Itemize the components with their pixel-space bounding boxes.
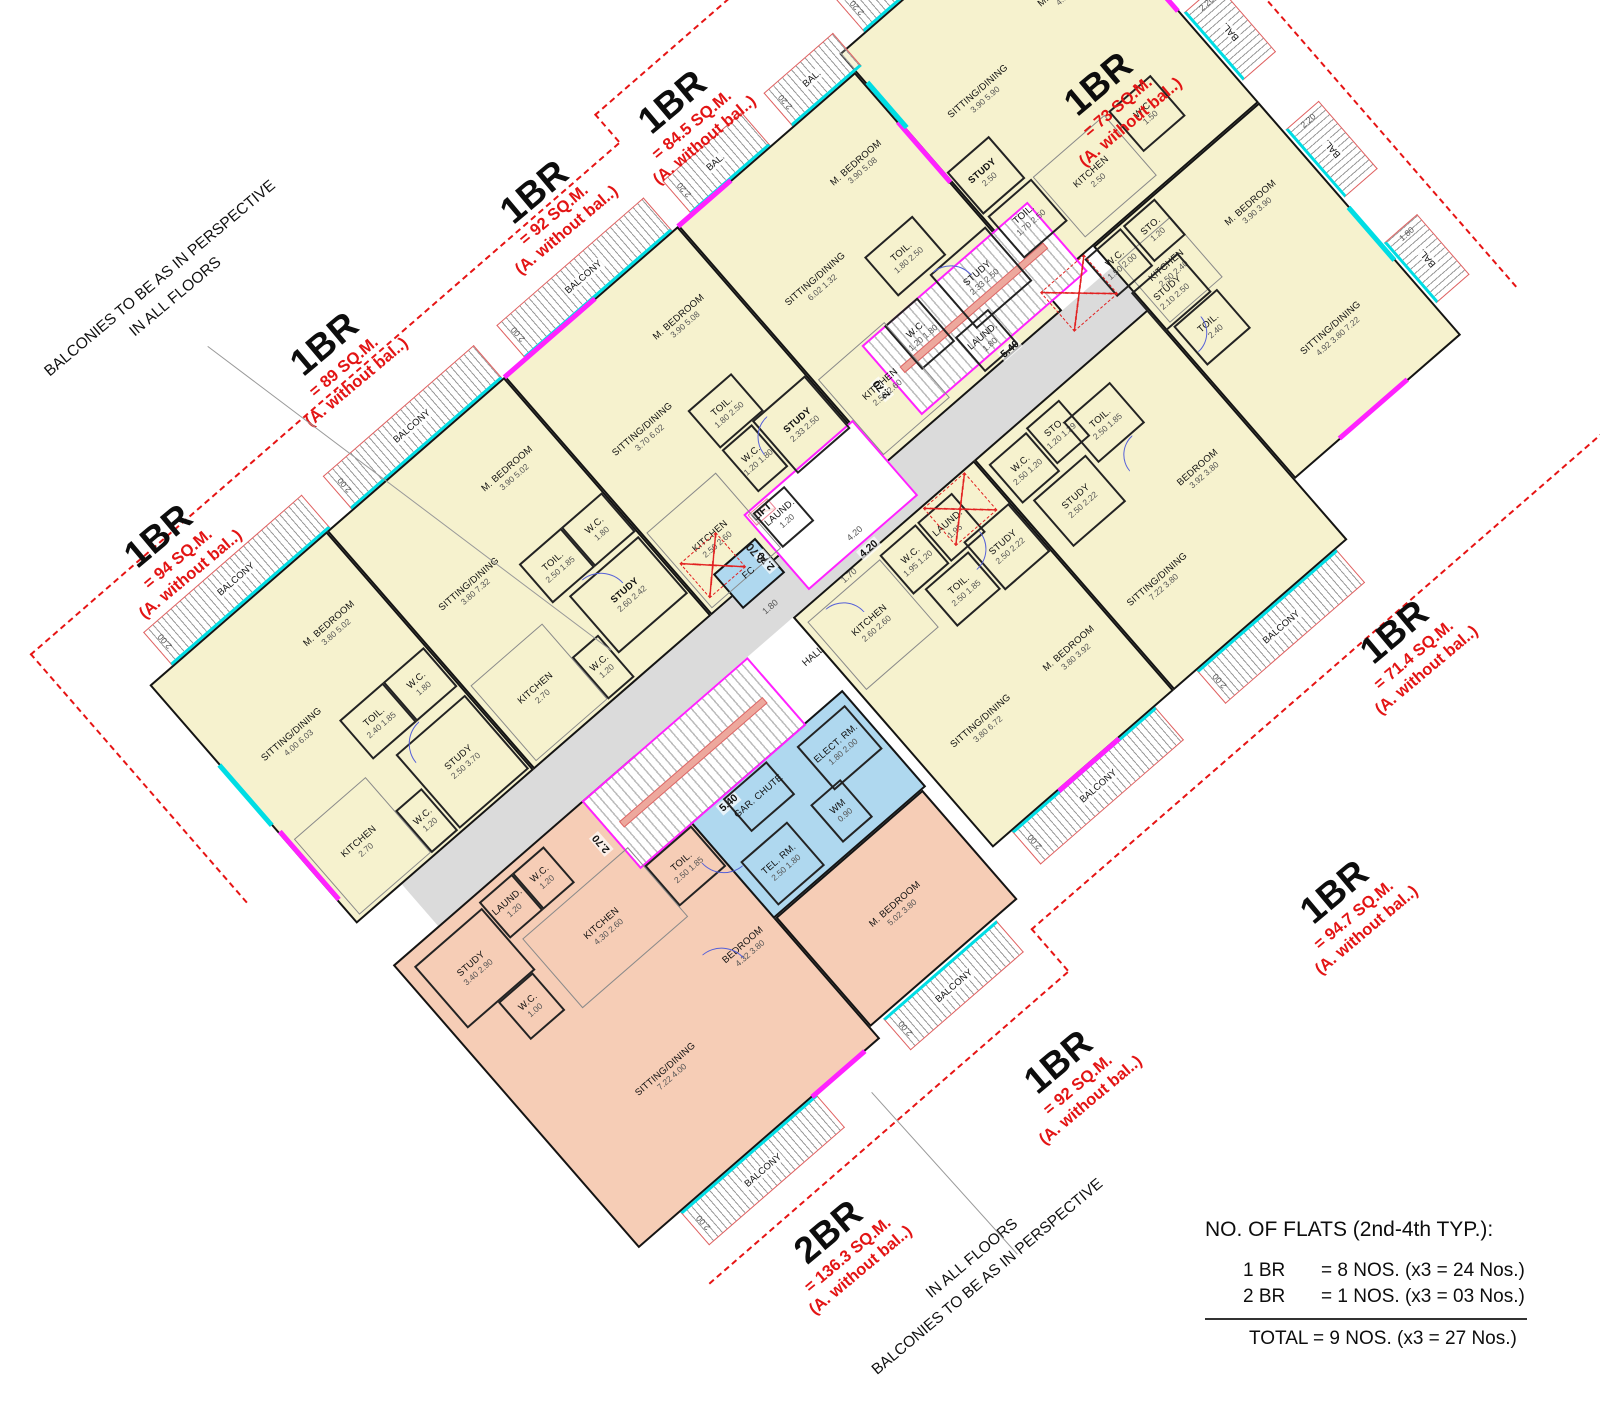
flats-row-label: 2 BR <box>1243 1286 1321 1308</box>
balcony-label: BAL. <box>1218 19 1242 45</box>
balcony-dimension: 2.00 <box>1210 672 1228 691</box>
flats-table-title: NO. OF FLATS (2nd-4th TYP.): <box>1205 1218 1527 1242</box>
balcony-dimension: 2.20 <box>1197 0 1216 13</box>
balcony-dimension: 2.20 <box>675 181 693 200</box>
balcony-dimension: 2.20 <box>848 0 866 18</box>
room-label: SITTING/DINING <box>949 693 1013 751</box>
balcony-label: BAL. <box>1415 245 1439 271</box>
room-label: SITTING/DINING <box>784 251 848 309</box>
room-dimension: 4.00 5.80 <box>1054 0 1087 7</box>
balcony-note: BALCONIES TO BE AS IN PERSPECTIVEIN ALL … <box>39 175 296 402</box>
unit-area-tag: 1BR= 89 SQ.M.(A. without bal..) <box>263 288 413 432</box>
balcony-label: BALCONY <box>214 559 259 600</box>
balcony-label: BAL. <box>799 67 825 91</box>
balcony-dimension: 2.20 <box>1299 111 1318 129</box>
flats-table-rows: 1 BR= 8 NOS. (x3 = 24 Nos.)2 BR= 1 NOS. … <box>1205 1260 1527 1308</box>
balcony-dimension: 2.00 <box>1025 832 1043 851</box>
setback-dashed-line <box>1030 928 1068 972</box>
flats-row-label: 1 BR <box>1243 1260 1321 1282</box>
unit-area-tag: 1BR= 92 SQ.M.(A. without bal..) <box>997 1006 1147 1150</box>
room-label: SITTING/DINING <box>437 556 501 614</box>
room-label: SITTING/DINING <box>260 706 324 764</box>
balcony-dimension: 1.80 <box>1397 225 1416 243</box>
balcony-note-line: BALCONIES TO BE AS IN PERSPECTIVE <box>867 1173 1109 1382</box>
balcony-label: BALCONY <box>561 257 606 298</box>
balcony-note-line: BALCONIES TO BE AS IN PERSPECTIVE <box>39 175 281 384</box>
flats-table-rule <box>1205 1318 1527 1320</box>
unit-area-tag: 2BR= 136.3 SQ.M.(A. without bal..) <box>767 1176 917 1320</box>
flats-row-value: = 1 NOS. (x3 = 03 Nos.) <box>1321 1286 1525 1308</box>
balcony-dimension: 2.00 <box>896 1019 914 1038</box>
flats-count-table: NO. OF FLATS (2nd-4th TYP.): 1 BR= 8 NOS… <box>1205 1218 1527 1350</box>
balcony-dimension: 2.00 <box>335 476 353 495</box>
flats-table-row: 1 BR= 8 NOS. (x3 = 24 Nos.) <box>1243 1260 1527 1282</box>
balcony-note: IN ALL FLOORSBALCONIES TO BE AS IN PERSP… <box>851 1155 1108 1382</box>
balcony-label: BAL. <box>1320 136 1344 162</box>
flats-table-row: 2 BR= 1 NOS. (x3 = 03 Nos.) <box>1243 1286 1527 1308</box>
balcony-dimension: 2.00 <box>155 632 173 651</box>
room-label: SITTING/DINING <box>1125 551 1189 609</box>
unit-area-tag: 1BR= 94.7 SQ.M.(A. without bal..) <box>1273 836 1423 980</box>
room-label: SITTING/DINING <box>611 401 675 459</box>
floor-plan: BALCONY2.00BALCONY2.00BALCONY2.00BAL.2.2… <box>120 0 1559 1248</box>
plan-text: HALL <box>800 644 826 669</box>
balcony-note-line: IN ALL FLOORS <box>55 193 297 402</box>
room-label: SITTING/DINING <box>1299 300 1363 358</box>
balcony-label: BALCONY <box>390 406 435 447</box>
balcony-dimension: 2.20 <box>776 93 794 112</box>
room-label: SITTING/DINING <box>946 63 1010 121</box>
floor-plan-sheet: BALCONY2.00BALCONY2.00BALCONY2.00BAL.2.2… <box>0 0 1600 1414</box>
flats-row-value: = 8 NOS. (x3 = 24 Nos.) <box>1321 1260 1525 1282</box>
balcony-label: BAL. <box>703 150 729 174</box>
room-label: SITTING/DINING <box>633 1041 697 1099</box>
flats-table-total: TOTAL = 9 NOS. (x3 = 27 Nos.) <box>1249 1328 1527 1350</box>
balcony-label: BALCONY <box>741 1150 786 1191</box>
balcony-dimension: 2.00 <box>694 1213 712 1232</box>
balcony-dimension: 2.00 <box>509 325 527 344</box>
balcony-label: BALCONY <box>932 966 977 1007</box>
balcony-label: BALCONY <box>1259 607 1304 648</box>
